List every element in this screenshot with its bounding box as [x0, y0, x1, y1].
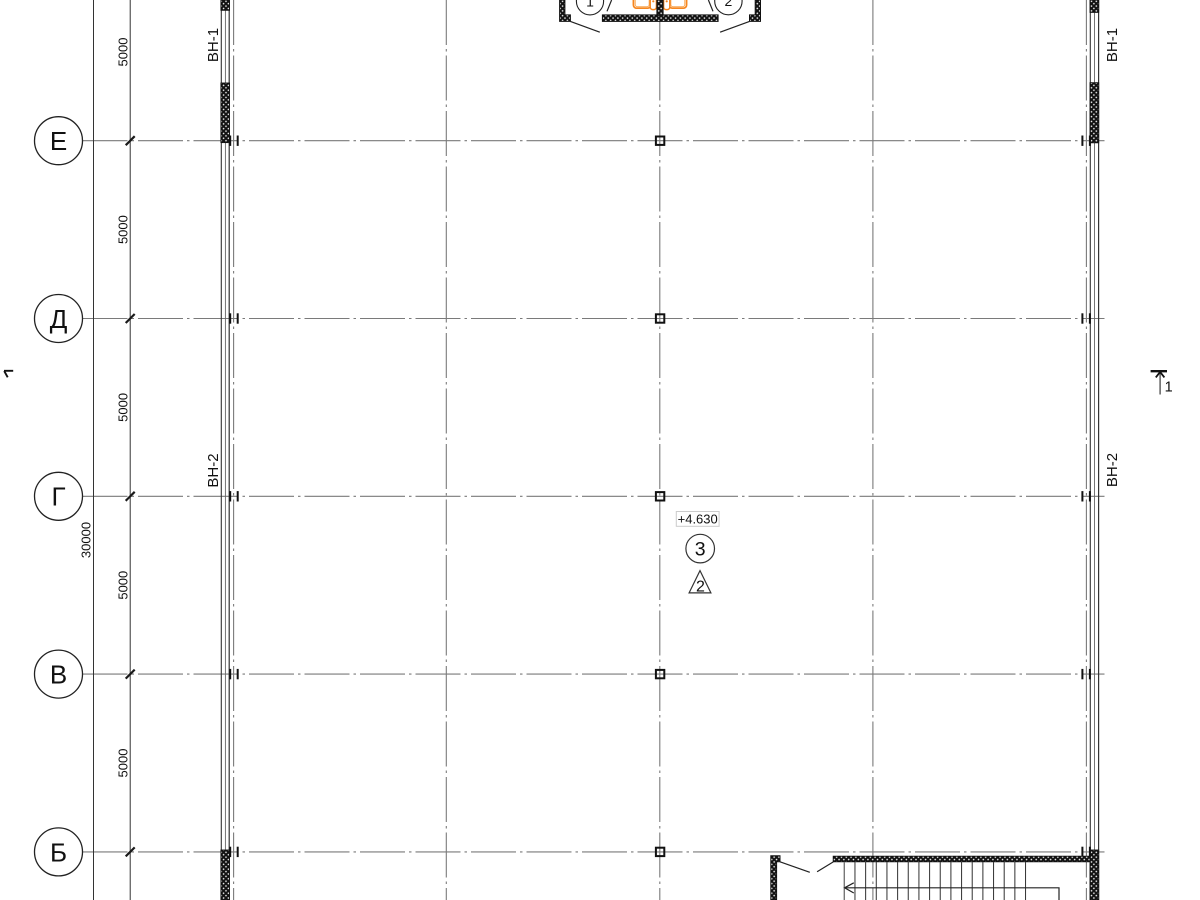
svg-text:ВН-2: ВН-2 — [205, 453, 222, 487]
svg-text:5000: 5000 — [116, 215, 131, 244]
svg-text:ВН-2: ВН-2 — [1104, 453, 1121, 487]
svg-text:ВН-1: ВН-1 — [1104, 28, 1121, 62]
svg-text:3: 3 — [695, 539, 706, 561]
svg-text:1: 1 — [586, 0, 594, 9]
svg-text:Г: Г — [51, 482, 65, 512]
svg-text:ВН-1: ВН-1 — [205, 28, 222, 62]
svg-text:Е: Е — [50, 126, 67, 156]
svg-text:5000: 5000 — [116, 749, 131, 778]
svg-text:1: 1 — [1165, 379, 1173, 395]
svg-text:+4.630: +4.630 — [678, 512, 718, 527]
svg-text:30000: 30000 — [79, 522, 94, 558]
svg-text:Д: Д — [50, 304, 68, 334]
svg-text:2: 2 — [696, 578, 705, 595]
svg-text:В: В — [50, 660, 67, 690]
svg-text:5000: 5000 — [116, 38, 131, 67]
svg-text:5000: 5000 — [116, 571, 131, 600]
svg-text:5000: 5000 — [116, 393, 131, 422]
svg-text:Б: Б — [50, 837, 67, 867]
svg-text:2: 2 — [725, 0, 733, 9]
